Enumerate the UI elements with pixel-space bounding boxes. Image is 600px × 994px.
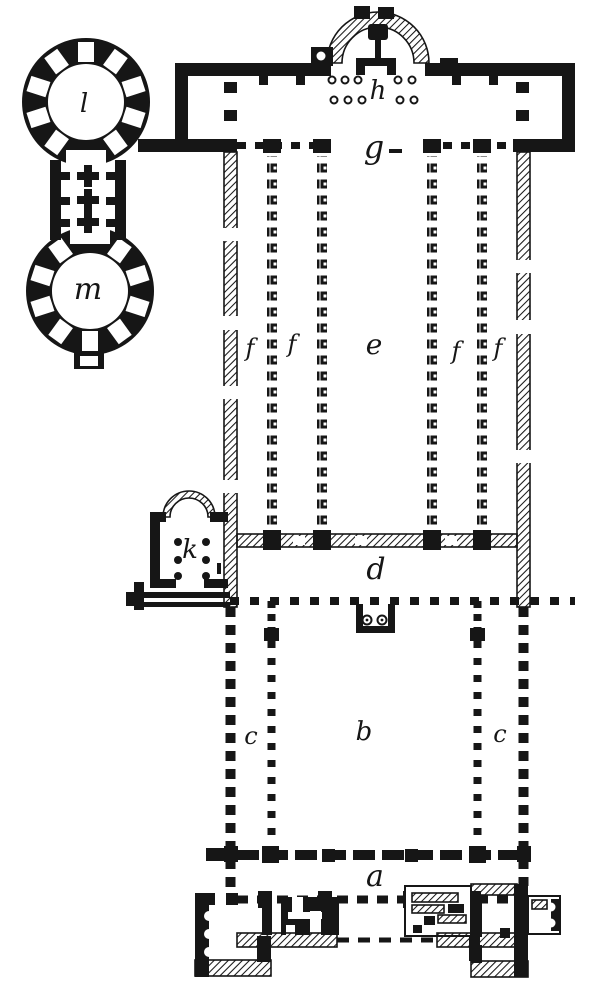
label-d: d: [366, 552, 385, 587]
entrance-block: [195, 884, 560, 977]
label-g: g: [364, 128, 384, 166]
label-m: m: [74, 272, 102, 307]
rotunda-complex: [22, 38, 190, 369]
rotunda-corridor: [50, 160, 126, 240]
label-b: b: [356, 717, 373, 747]
colonnade-row: [317, 156, 327, 534]
label-f-inner-left: f: [286, 330, 301, 358]
atrium: [206, 607, 531, 895]
colonnade-row: [267, 156, 277, 534]
label-f-outer-right: f: [492, 334, 507, 362]
colonnade-row: [477, 156, 487, 534]
plan-svg: l m h g f f e f f k d c b c a: [0, 0, 600, 994]
label-c-right: c: [493, 720, 506, 748]
chapel-k: [126, 491, 230, 610]
label-k: k: [182, 535, 198, 565]
label-c-left: c: [244, 722, 257, 750]
label-h: h: [370, 76, 387, 106]
floor-plan-figure: l m h g f f e f f k d c b c a: [0, 0, 600, 994]
colonnade-row: [427, 156, 437, 534]
label-f-outer-left: f: [244, 334, 259, 362]
labels: l m h g f f e f f k d c b c a: [74, 76, 507, 894]
stair-right: [405, 886, 471, 936]
atrium-gate: [356, 604, 395, 633]
label-l: l: [80, 89, 88, 119]
label-a: a: [366, 859, 384, 894]
stair-left: [281, 897, 339, 935]
label-f-inner-right: f: [450, 337, 465, 365]
label-e: e: [366, 328, 383, 361]
